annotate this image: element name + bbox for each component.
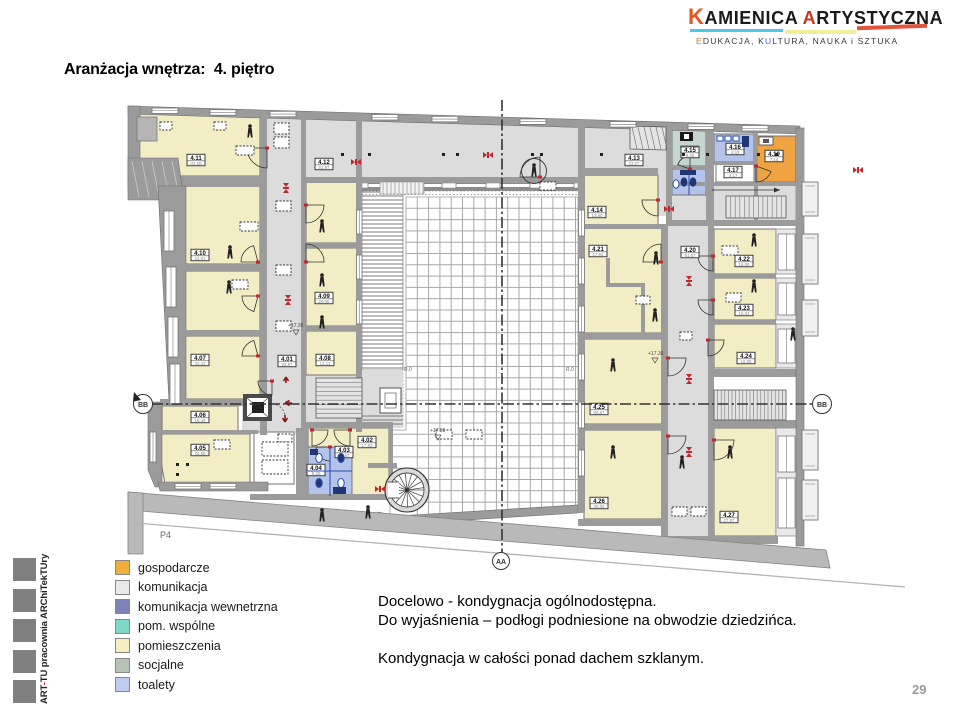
svg-text:9.20: 9.20	[312, 471, 321, 476]
svg-text:18.04: 18.04	[739, 311, 751, 316]
svg-text:AA: AA	[496, 559, 506, 566]
svg-text:24.81: 24.81	[195, 256, 207, 261]
svg-text:42.42: 42.42	[195, 361, 207, 366]
svg-text:4.17: 4.17	[729, 173, 738, 178]
svg-text:13.50: 13.50	[592, 213, 604, 218]
svg-text:35.68: 35.68	[195, 451, 207, 456]
svg-text:61.67: 61.67	[685, 253, 697, 258]
svg-text:16.48: 16.48	[195, 418, 207, 423]
svg-text:BB: BB	[138, 402, 148, 409]
svg-text:8.46: 8.46	[686, 153, 695, 158]
svg-text:16.99: 16.99	[741, 359, 753, 364]
svg-text:R.0: R.0	[404, 367, 412, 373]
svg-text:4.53: 4.53	[731, 150, 740, 155]
svg-text:26.99: 26.99	[319, 299, 331, 304]
svg-text:17.94: 17.94	[593, 252, 605, 257]
svg-text:KUCHNIA: KUCHNIA	[680, 144, 698, 149]
svg-text:18.06: 18.06	[739, 262, 751, 267]
svg-text:7.14: 7.14	[770, 157, 779, 162]
svg-text:R.0: R.0	[566, 367, 574, 373]
svg-text:60.67: 60.67	[594, 410, 606, 415]
svg-text:81.97: 81.97	[319, 165, 331, 170]
svg-text:27.87: 27.87	[724, 518, 736, 523]
svg-text:34.60: 34.60	[191, 161, 203, 166]
svg-text:23.07: 23.07	[629, 161, 641, 166]
svg-text:17.50: 17.50	[362, 443, 374, 448]
svg-text:+17.36: +17.36	[288, 323, 304, 329]
svg-text:P4: P4	[160, 530, 171, 540]
svg-text:28.06: 28.06	[594, 504, 606, 509]
svg-text:53.97: 53.97	[282, 362, 294, 367]
svg-text:BB: BB	[817, 402, 827, 409]
svg-text:14.11: 14.11	[320, 361, 331, 366]
svg-text:+17.36: +17.36	[648, 351, 664, 357]
svg-text:+17.36: +17.36	[430, 428, 446, 434]
